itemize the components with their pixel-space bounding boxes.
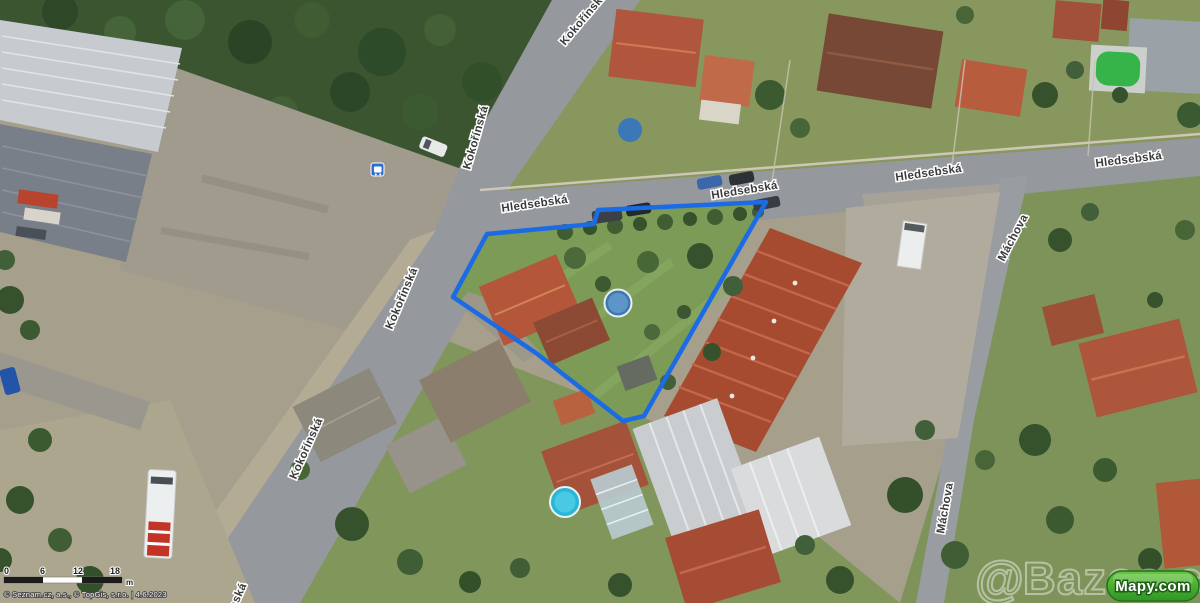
mapy-logo: Mapy.com — [1107, 571, 1199, 601]
scale-tick-6: 6 — [40, 566, 45, 576]
small-blue-pool — [618, 118, 642, 142]
green-pool — [1095, 51, 1141, 87]
round-pool — [605, 290, 632, 317]
map-screenshot: Hledsebská Hledsebská Hledsebská Hledseb… — [0, 0, 1200, 603]
bazos-watermark-symbol: @ — [975, 551, 1025, 603]
truck — [144, 469, 177, 558]
scale-tick-0: 0 — [4, 566, 9, 576]
attribution-text: © Seznam.cz, a.s., © TopGis, s.r.o. | 4.… — [4, 590, 167, 599]
azure-pool — [550, 487, 580, 517]
scale-tick-18: 18 — [110, 566, 120, 576]
mapy-logo-text: Mapy.com — [1115, 578, 1190, 595]
map-canvas[interactable]: Hledsebská Hledsebská Hledsebská Hledseb… — [0, 0, 1200, 603]
scale-tick-12: 12 — [73, 566, 83, 576]
bus-stop-icon[interactable] — [371, 163, 384, 176]
scale-unit: m — [126, 578, 133, 587]
